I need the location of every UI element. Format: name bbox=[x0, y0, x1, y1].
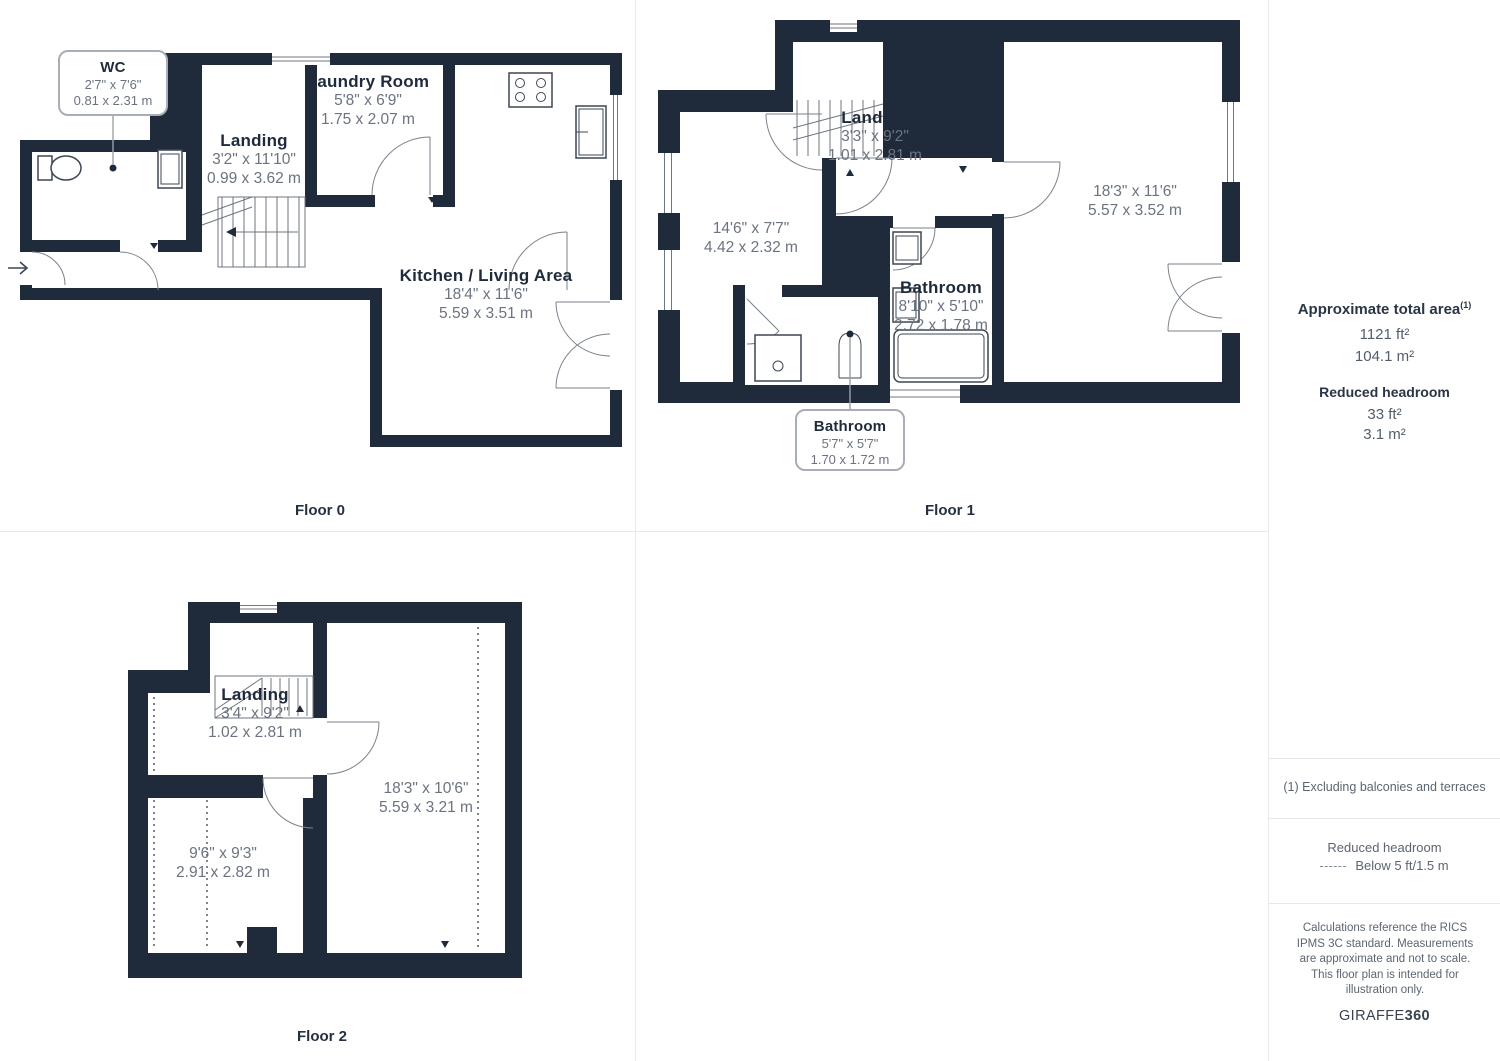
area-footnote: (1) Excluding balconies and terraces bbox=[1269, 780, 1500, 794]
floor1-label: Floor 1 bbox=[925, 502, 975, 519]
total-area-label: Approximate total area bbox=[1298, 301, 1461, 318]
wc-callout: WC 2'7" x 7'6" 0.81 x 2.31 m bbox=[58, 50, 168, 116]
room-dim-metric: 1.70 x 1.72 m bbox=[797, 452, 903, 468]
total-area-ft: 1121 ft² bbox=[1269, 326, 1500, 343]
room-dim-imperial: 2'7" x 7'6" bbox=[60, 77, 166, 93]
floor1-plan bbox=[635, 0, 1268, 531]
total-area-m: 104.1 m² bbox=[1269, 348, 1500, 365]
toilet-icon bbox=[38, 156, 81, 180]
giraffe360-logo: GIRAFFE360 bbox=[1269, 1008, 1500, 1024]
sidebar-divider bbox=[1269, 758, 1500, 759]
room-name: WC bbox=[60, 58, 166, 77]
reduced-headroom-m: 3.1 m² bbox=[1269, 426, 1500, 443]
shower-icon bbox=[755, 335, 801, 381]
floor2-plan bbox=[0, 531, 635, 1061]
brand-regular: GIRAFFE bbox=[1339, 1008, 1405, 1024]
washbasin-icon bbox=[893, 288, 919, 322]
panel-divider-horizontal bbox=[0, 531, 1268, 532]
reduced-headroom-title: Reduced headroom bbox=[1269, 384, 1500, 400]
reduced-headroom-ft: 33 ft² bbox=[1269, 406, 1500, 423]
floorplan-page: WC 2'7" x 7'6" 0.81 x 2.31 m Landing 3'2… bbox=[0, 0, 1500, 1061]
summary-sidebar: Approximate total area(1) 1121 ft² 104.1… bbox=[1268, 0, 1500, 1061]
bathtub-icon bbox=[894, 330, 988, 382]
room-dim-imperial: 5'7" x 5'7" bbox=[797, 436, 903, 452]
floor2-label: Floor 2 bbox=[297, 1028, 347, 1045]
total-area-title: Approximate total area(1) bbox=[1269, 300, 1500, 318]
legend-value: Below 5 ft/1.5 m bbox=[1355, 858, 1448, 873]
sidebar-divider bbox=[1269, 903, 1500, 904]
legend-title: Reduced headroom bbox=[1269, 840, 1500, 855]
stove-icon bbox=[509, 73, 552, 107]
bathroom-callout: Bathroom 5'7" x 5'7" 1.70 x 1.72 m bbox=[795, 409, 905, 471]
room-dim-metric: 0.81 x 2.31 m bbox=[60, 93, 166, 109]
brand-bold: 360 bbox=[1405, 1008, 1430, 1024]
washbasin-icon bbox=[158, 150, 182, 188]
sidebar-divider bbox=[1269, 818, 1500, 819]
floor0-label: Floor 0 bbox=[295, 502, 345, 519]
legend-row: Below 5 ft/1.5 m bbox=[1269, 858, 1500, 873]
footnote-mark: (1) bbox=[1460, 300, 1471, 310]
disclaimer-text: Calculations reference the RICS IPMS 3C … bbox=[1292, 921, 1478, 999]
shower-cabinet-icon bbox=[893, 232, 921, 264]
room-name: Bathroom bbox=[797, 417, 903, 436]
sink-icon bbox=[576, 106, 606, 158]
dashed-line-icon bbox=[1320, 866, 1346, 867]
